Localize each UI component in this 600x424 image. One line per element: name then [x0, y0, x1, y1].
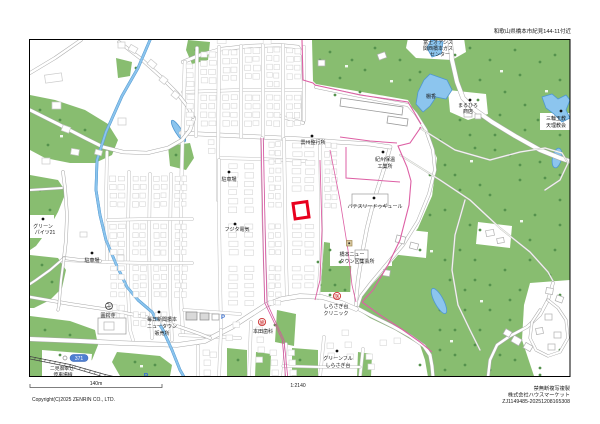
- svg-text:和歌山県橋本市紀見144-11付近: 和歌山県橋本市紀見144-11付近: [494, 27, 572, 35]
- svg-text:関西橋本ガス: 関西橋本ガス: [423, 45, 453, 52]
- svg-text:371: 371: [75, 356, 84, 362]
- svg-text:株式会社ハウスマーケット: 株式会社ハウスマーケット: [508, 391, 570, 399]
- svg-text:駐車場: 駐車場: [84, 257, 99, 264]
- svg-text:三輪玉教: 三輪玉教: [546, 115, 566, 122]
- svg-text:紀州保温: 紀州保温: [375, 156, 395, 163]
- svg-text:Copyright(C)2025 ZENRIN CO., L: Copyright(C)2025 ZENRIN CO., LTD.: [32, 397, 115, 403]
- svg-text:1:2140: 1:2140: [290, 383, 306, 389]
- svg-text:工業所: 工業所: [377, 163, 392, 170]
- svg-text:しらさぎ台: しらさぎ台: [323, 303, 348, 310]
- svg-text:フジタ電気: フジタ電気: [225, 226, 250, 233]
- svg-text:橋本ニュー: 橋本ニュー: [339, 251, 364, 258]
- svg-text:パイツ21: パイツ21: [35, 230, 56, 236]
- svg-text:商店: 商店: [463, 108, 473, 115]
- svg-text:クリニック: クリニック: [323, 311, 348, 317]
- svg-text:卍: 卍: [106, 304, 112, 311]
- svg-text:二見御幸辻: 二見御幸辻: [50, 365, 74, 372]
- svg-text:本田歯科: 本田歯科: [253, 328, 273, 335]
- svg-text:グリーン: グリーン: [33, 223, 53, 230]
- svg-text:140m: 140m: [90, 381, 103, 387]
- svg-text:棚香: 棚香: [426, 93, 436, 100]
- svg-text:タウン区集会所: タウン区集会所: [339, 258, 374, 265]
- svg-text:販売所: 販売所: [154, 330, 169, 337]
- svg-text:ZJ1149485-20251208165308: ZJ1149485-20251208165308: [502, 399, 570, 405]
- svg-text:禁無断複写複製: 禁無断複写複製: [534, 384, 570, 392]
- svg-text:グリーンフル: グリーンフル: [323, 355, 353, 362]
- svg-text:しらさぎ台: しらさぎ台: [325, 362, 350, 369]
- svg-text:センター: センター: [430, 51, 450, 58]
- svg-text:医: 医: [334, 294, 340, 301]
- svg-text:雲州整行所: 雲州整行所: [300, 139, 325, 146]
- svg-text:天理教会: 天理教会: [546, 122, 566, 129]
- svg-text:P: P: [221, 315, 225, 321]
- svg-text:圓鍔寺: 圓鍔寺: [100, 312, 115, 319]
- svg-text:駐車場: 駐車場: [221, 176, 236, 183]
- svg-text:ニュータウン: ニュータウン: [147, 323, 177, 330]
- svg-text:バテスリードゥギュール: バテスリードゥギュール: [347, 204, 402, 210]
- svg-text:毎日新聞橋本: 毎日新聞橋本: [147, 316, 177, 323]
- svg-text:歯: 歯: [259, 319, 265, 327]
- svg-text:富士オアシス: 富士オアシス: [423, 39, 453, 46]
